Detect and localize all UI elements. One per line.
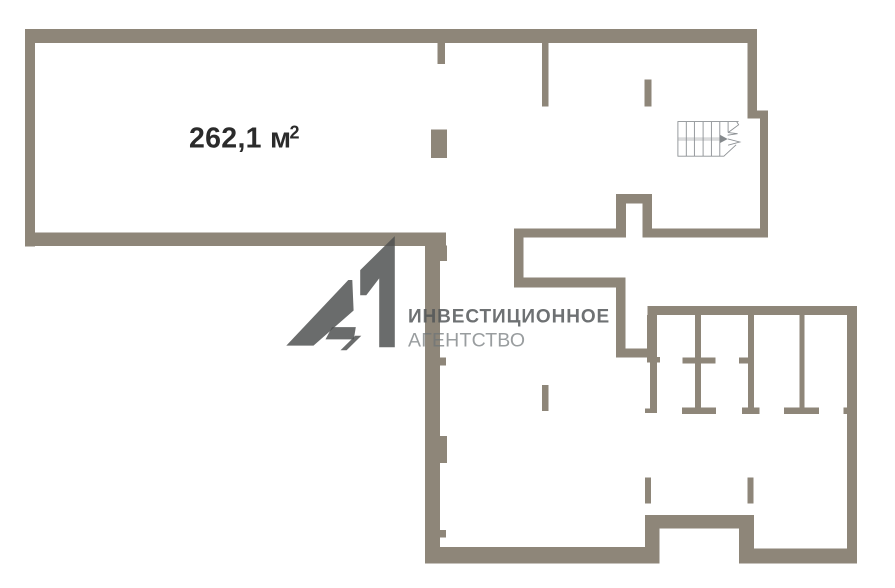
- svg-text:2: 2: [290, 123, 300, 143]
- svg-text:АГЕНТСТВО: АГЕНТСТВО: [408, 330, 525, 352]
- svg-text:ИНВЕСТИЦИОННОЕ: ИНВЕСТИЦИОННОЕ: [408, 306, 610, 327]
- svg-text:262,1 м: 262,1 м: [189, 123, 291, 155]
